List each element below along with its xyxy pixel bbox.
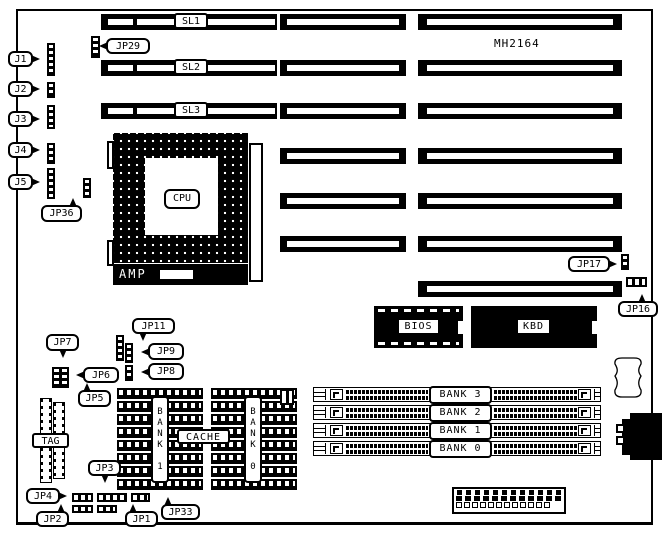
bios-socket-edge	[378, 342, 459, 345]
callout-text: JP36	[49, 208, 73, 219]
callout-text: JP11	[141, 321, 165, 332]
callout-jp6: JP6	[83, 367, 119, 383]
jumper-block-j4	[47, 143, 55, 164]
callout-text: J2	[14, 84, 26, 95]
amp-chip: AMP	[113, 264, 248, 285]
bios-label: BIOS	[398, 319, 439, 334]
slot-opening	[427, 153, 613, 159]
callout-jp17: JP17	[568, 256, 610, 272]
simm-label-text: BANK 0	[439, 443, 481, 454]
callout-jp29: JP29	[106, 38, 150, 54]
callout-text: CACHE	[186, 432, 221, 443]
callout-text: JP1	[132, 514, 150, 525]
callout-jp11: JP11	[132, 318, 175, 334]
callout-pointer	[69, 198, 77, 207]
callout-text: JP4	[34, 491, 52, 502]
vlabel-text: BANK 0	[248, 407, 258, 473]
simm-latch	[330, 443, 343, 454]
callout-pointer	[31, 55, 40, 63]
bios-label-text: BIOS	[404, 321, 432, 332]
callout-pointer	[141, 368, 150, 376]
slot-opening	[287, 153, 399, 159]
callout-jp3: JP3	[88, 460, 121, 476]
callout-text: J3	[14, 114, 26, 125]
bios-chip: BIOS	[374, 306, 463, 348]
slot-row4-right	[418, 148, 622, 164]
jumper-block-jp5-jp6-jp7	[52, 367, 69, 388]
simm-label-text: BANK 2	[439, 407, 481, 418]
simm-label-text: BANK 1	[439, 425, 481, 436]
jumper-block-jp2	[72, 505, 93, 513]
jumper-block-jp8	[125, 365, 133, 381]
callout-text: JP17	[577, 259, 601, 270]
callout-pointer	[31, 115, 40, 123]
kbd-chip: KBD	[471, 306, 597, 348]
simm-endcap	[314, 389, 326, 400]
jumper-block-jp17	[621, 254, 629, 270]
simm-contacts	[345, 444, 428, 454]
slot-opening	[287, 241, 399, 247]
callout-pointer	[31, 85, 40, 93]
simm-slot-bank1: BANK 1	[313, 423, 601, 438]
oscillator	[613, 357, 643, 398]
simm-endcap	[314, 443, 326, 454]
callout-text: JP6	[92, 370, 110, 381]
din-pin	[616, 436, 625, 445]
callout-j2: J2	[8, 81, 33, 97]
cache-bank0-label: BANK 0	[244, 396, 262, 483]
simm-endcap	[314, 425, 326, 436]
simm-latch	[330, 425, 343, 436]
kbd-notch	[592, 321, 597, 334]
callout-pointer	[638, 294, 646, 303]
jumper-block-j5	[47, 168, 55, 199]
simm-endcap	[594, 389, 600, 400]
regulator-strip	[249, 143, 263, 282]
callout-text: JP3	[95, 463, 113, 474]
pin-block	[280, 389, 294, 405]
slot-row7-right	[418, 281, 622, 297]
slot-sl3-right	[418, 103, 622, 119]
keyboard-din-connector	[630, 413, 662, 460]
slot-label-sl2: SL2	[174, 59, 208, 75]
simm-label-text: BANK 3	[439, 389, 481, 400]
jumper-block-jp16	[626, 277, 647, 287]
callout-text: JP33	[168, 507, 192, 518]
slot-label-text: SL3	[182, 105, 200, 116]
simm-slot-bank2: BANK 2	[313, 405, 601, 420]
callout-text: TAG	[41, 436, 59, 447]
simm-latch	[578, 443, 591, 454]
callout-text: JP16	[626, 304, 650, 315]
slot-sl3-mid	[280, 103, 406, 119]
simm-contacts	[493, 408, 577, 418]
slot-opening	[427, 65, 613, 71]
jumper-block-jp11	[116, 335, 124, 361]
slot-sl2-right	[418, 60, 622, 76]
simm-label-bank3: BANK 3	[429, 386, 492, 404]
callout-pointer	[101, 474, 109, 483]
jumper-block-jp1	[97, 505, 117, 513]
jumper-block-j2	[47, 82, 55, 98]
slot-opening	[108, 108, 133, 114]
callout-jp8: JP8	[148, 363, 184, 380]
callout-text: JP8	[157, 366, 175, 377]
jumper-block-jp9	[125, 343, 133, 363]
slot-sl1-right	[418, 14, 622, 30]
kbd-label: KBD	[517, 319, 550, 334]
simm-endcap	[594, 407, 600, 418]
callout-text: J5	[14, 177, 26, 188]
slot-opening	[427, 198, 613, 204]
jumper-block-jp33	[131, 493, 150, 502]
slot-row6-right	[418, 236, 622, 252]
callout-pointer	[164, 497, 172, 506]
power-connector	[452, 487, 566, 514]
callout-jp9: JP9	[148, 343, 184, 360]
callout-text: J4	[14, 145, 26, 156]
slot-opening	[427, 108, 613, 114]
jumper-block-j3	[47, 105, 55, 129]
slot-sl2-mid	[280, 60, 406, 76]
callout-jp33: JP33	[161, 504, 200, 520]
callout-j4: J4	[8, 142, 33, 158]
callout-j1: J1	[8, 51, 33, 67]
callout-j3: J3	[8, 111, 33, 127]
jumper-block-jp3	[97, 493, 127, 502]
chip-pins	[119, 390, 201, 395]
simm-contacts	[493, 444, 577, 454]
slot-sl1-mid	[280, 14, 406, 30]
simm-label-bank2: BANK 2	[429, 404, 492, 422]
slot-row4-mid	[280, 148, 406, 164]
amp-label: AMP	[119, 267, 147, 281]
socket-tab-top	[107, 141, 114, 169]
simm-contacts	[345, 390, 428, 400]
callout-jp5: JP5	[78, 390, 111, 407]
callout-jp16: JP16	[618, 301, 658, 317]
callout-text: JP5	[85, 393, 103, 404]
callout-pointer	[83, 383, 91, 392]
simm-latch	[578, 407, 591, 418]
simm-endcap	[594, 425, 600, 436]
model-number: MH2164	[494, 37, 540, 50]
slot-opening	[287, 19, 399, 25]
cache-label: CACHE	[177, 429, 230, 444]
simm-latch	[578, 425, 591, 436]
callout-pointer	[31, 178, 40, 186]
simm-contacts	[345, 426, 428, 436]
connector-bar	[456, 496, 562, 501]
jumper-block-j1	[47, 43, 55, 76]
vlabel-text: BANK 1	[155, 407, 165, 473]
callout-jp2: JP2	[36, 511, 69, 527]
simm-slot-bank0: BANK 0	[313, 441, 601, 456]
slot-row5-mid	[280, 193, 406, 209]
simm-latch	[330, 389, 343, 400]
kbd-label-text: KBD	[523, 321, 544, 332]
slot-opening	[108, 19, 133, 25]
simm-contacts	[345, 408, 428, 418]
slot-row5-right	[418, 193, 622, 209]
slot-row6-mid	[280, 236, 406, 252]
slot-label-text: SL1	[182, 16, 200, 27]
slot-label-sl1: SL1	[174, 13, 208, 29]
callout-pointer	[76, 371, 85, 379]
amp-window	[160, 270, 193, 279]
connector-pins-bottom	[454, 502, 564, 508]
callout-text: JP9	[157, 346, 175, 357]
callout-text: JP2	[43, 514, 61, 525]
callout-pointer	[59, 349, 67, 358]
callout-pointer	[139, 332, 147, 341]
callout-text: CPU	[173, 193, 191, 204]
motherboard-diagram: MH2164 SL1 SL2 SL3	[0, 0, 667, 538]
callout-text: JP29	[116, 41, 140, 52]
callout-jp1: JP1	[125, 511, 158, 527]
cache-bank1-label: BANK 1	[151, 396, 169, 483]
callout-j5: J5	[8, 174, 33, 190]
callout-pointer	[58, 492, 67, 500]
simm-label-bank0: BANK 0	[429, 440, 492, 458]
callout-pointer	[57, 504, 65, 513]
bios-socket-edge	[378, 309, 459, 312]
slot-opening	[427, 19, 613, 25]
din-pin	[616, 424, 625, 433]
simm-contacts	[493, 390, 577, 400]
callout-pointer	[129, 504, 137, 513]
socket-tab-bottom	[107, 240, 114, 266]
simm-endcap	[314, 407, 326, 418]
simm-latch	[330, 407, 343, 418]
slot-opening	[427, 241, 613, 247]
callout-cpu: CPU	[164, 189, 200, 209]
simm-endcap	[594, 443, 600, 454]
jumper-block-jp4	[72, 493, 93, 502]
callout-text: JP7	[53, 337, 71, 348]
slot-label-text: SL2	[182, 62, 200, 73]
callout-pointer	[608, 260, 617, 268]
callout-jp7: JP7	[46, 334, 79, 351]
jumper-block-jp36	[83, 178, 91, 198]
bios-notch	[458, 321, 463, 334]
simm-latch	[578, 389, 591, 400]
callout-jp4: JP4	[26, 488, 60, 504]
simm-contacts	[493, 426, 577, 436]
slot-opening	[287, 198, 399, 204]
callout-text: J1	[14, 54, 26, 65]
slot-opening	[427, 286, 613, 292]
tag-label: TAG	[32, 433, 69, 448]
connector-pins-top	[454, 490, 564, 495]
slot-opening	[287, 108, 399, 114]
callout-pointer	[141, 348, 150, 356]
slot-opening	[108, 65, 133, 71]
callout-pointer	[99, 42, 108, 50]
simm-slot-bank3: BANK 3	[313, 387, 601, 402]
simm-label-bank1: BANK 1	[429, 422, 492, 440]
callout-jp36: JP36	[41, 205, 82, 222]
slot-label-sl3: SL3	[174, 102, 208, 118]
slot-opening	[287, 65, 399, 71]
callout-pointer	[31, 146, 40, 154]
